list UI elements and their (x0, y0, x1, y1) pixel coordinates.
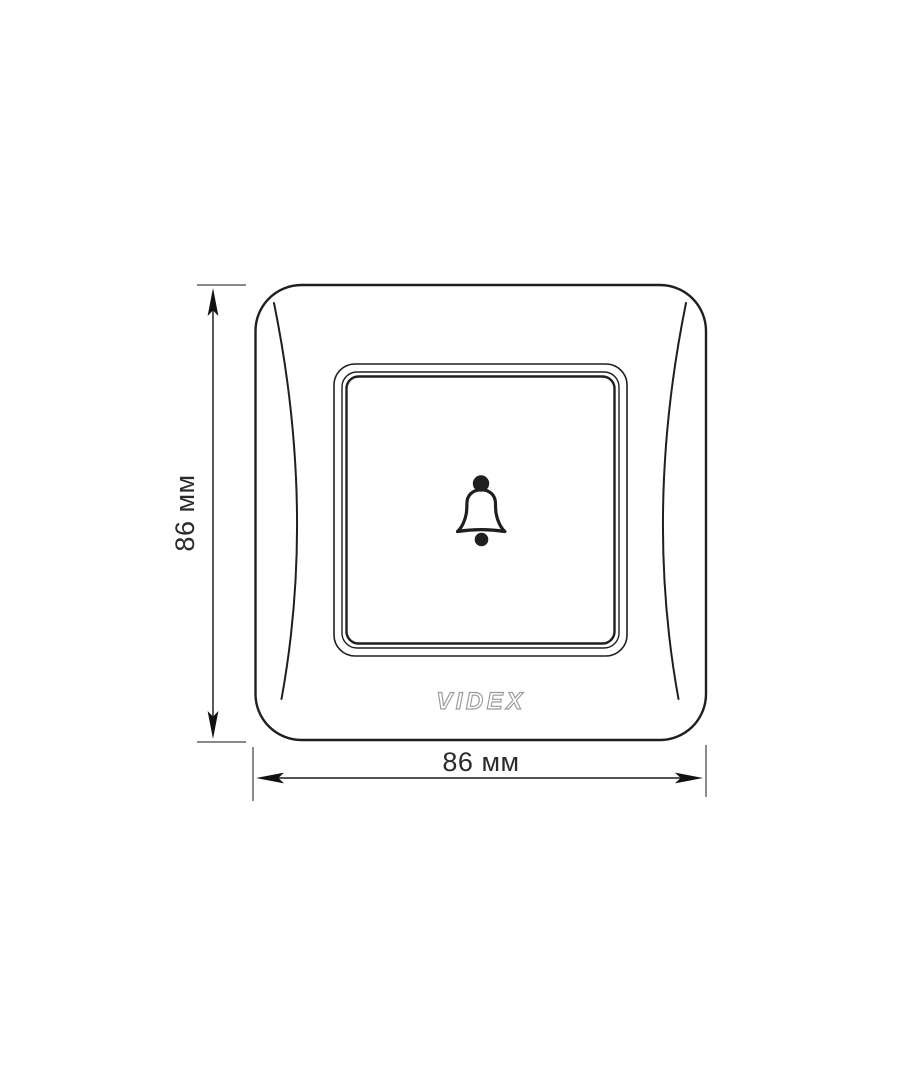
height-dimension: 86 мм (170, 285, 246, 742)
faceplate: VIDEX (256, 285, 707, 740)
bell-knob (473, 475, 489, 491)
brand-logo: VIDEX (436, 688, 526, 715)
bell-clapper (475, 533, 489, 547)
height-dimension-label: 86 мм (170, 474, 200, 551)
width-dimension-label: 86 мм (442, 747, 519, 777)
width-dimension: 86 мм (253, 745, 706, 801)
technical-drawing-page: VIDEX 86 мм 86 мм (0, 0, 910, 1080)
faceplate-technical-drawing: VIDEX 86 мм 86 мм (0, 0, 910, 1080)
